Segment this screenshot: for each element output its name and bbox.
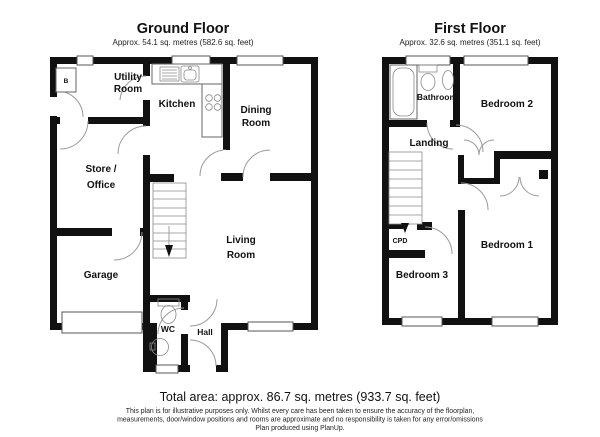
room-label-hall: Hall (197, 327, 213, 337)
window (77, 56, 93, 65)
window (492, 317, 538, 326)
door-arc (425, 227, 452, 254)
door-arc (456, 125, 483, 152)
boiler-label: B (64, 78, 69, 85)
floorplan-drawing: Ground Floor Approx. 54.1 sq. metres (58… (0, 0, 600, 437)
svg-text:Room: Room (227, 250, 255, 261)
window (464, 56, 528, 65)
cupboard-door-arc (464, 140, 479, 155)
kitchen-counter (202, 84, 222, 137)
door-arc (190, 299, 217, 326)
first-floor-stairs (389, 152, 422, 233)
first-floor-plan: First Floor Approx. 32.6 sq. metres (351… (382, 21, 558, 326)
svg-text:Room: Room (114, 84, 142, 95)
first-floor-area: Approx. 32.6 sq. metres (351.1 sq. feet) (400, 38, 541, 47)
room-label-kitchen: Kitchen (159, 99, 196, 110)
wardrobe-door-arc (500, 177, 519, 196)
ground-floor-stairs (153, 183, 186, 258)
toilet-icon (161, 306, 176, 324)
disclaimer-line: This plan is for illustrative purposes o… (126, 408, 474, 415)
garage-door (62, 312, 142, 333)
room-label-cpd: CPD (393, 238, 408, 245)
footer: Total area: approx. 86.7 sq. metres (933… (117, 390, 483, 432)
room-label-bedroom1: Bedroom 1 (481, 240, 534, 251)
ground-floor-plan: Ground Floor Approx. 54.1 sq. metres (58… (50, 21, 318, 373)
room-label-landing: Landing (410, 138, 449, 149)
floorplan-page: Ground Floor Approx. 54.1 sq. metres (58… (0, 0, 600, 437)
window (156, 365, 178, 373)
room-label-dining: Dining (240, 105, 271, 116)
room-label-bathroom: Bathroom (417, 92, 458, 102)
window (402, 317, 442, 326)
room-label-utility: Utility (114, 72, 142, 83)
first-floor-title: First Floor (434, 21, 506, 37)
room-label-garage: Garage (84, 270, 119, 281)
wardrobe-door-arc (520, 177, 539, 196)
toilet-icon (421, 74, 435, 91)
door-arc (57, 91, 83, 117)
door-arc (118, 126, 146, 154)
ground-floor-title: Ground Floor (137, 21, 230, 37)
room-label-wc: WC (161, 324, 175, 334)
room-label-bedroom3: Bedroom 3 (396, 270, 449, 281)
window (406, 56, 450, 65)
room-label-living: Living (226, 235, 255, 246)
door-arc (200, 150, 226, 176)
window (237, 56, 283, 65)
basin-icon (443, 71, 454, 90)
bathtub-icon (390, 65, 417, 119)
front-door-arc (190, 340, 216, 366)
door-arc (243, 150, 270, 177)
disclaimer-line: measurements, door/window positions and … (117, 417, 483, 424)
door-arc (60, 121, 88, 149)
svg-text:Office: Office (87, 180, 116, 191)
door-arc (461, 183, 488, 210)
room-label-bedroom2: Bedroom 2 (481, 99, 534, 110)
window (248, 322, 293, 331)
toilet-cistern-icon (419, 65, 437, 72)
total-area-text: Total area: approx. 86.7 sq. metres (933… (160, 390, 441, 404)
disclaimer-line: Plan produced using PlanUp. (255, 425, 344, 432)
ground-floor-area: Approx. 54.1 sq. metres (582.6 sq. feet) (113, 38, 254, 47)
room-label-store: Store / (85, 164, 116, 175)
svg-text:Room: Room (242, 118, 270, 129)
door-arc (114, 232, 142, 260)
